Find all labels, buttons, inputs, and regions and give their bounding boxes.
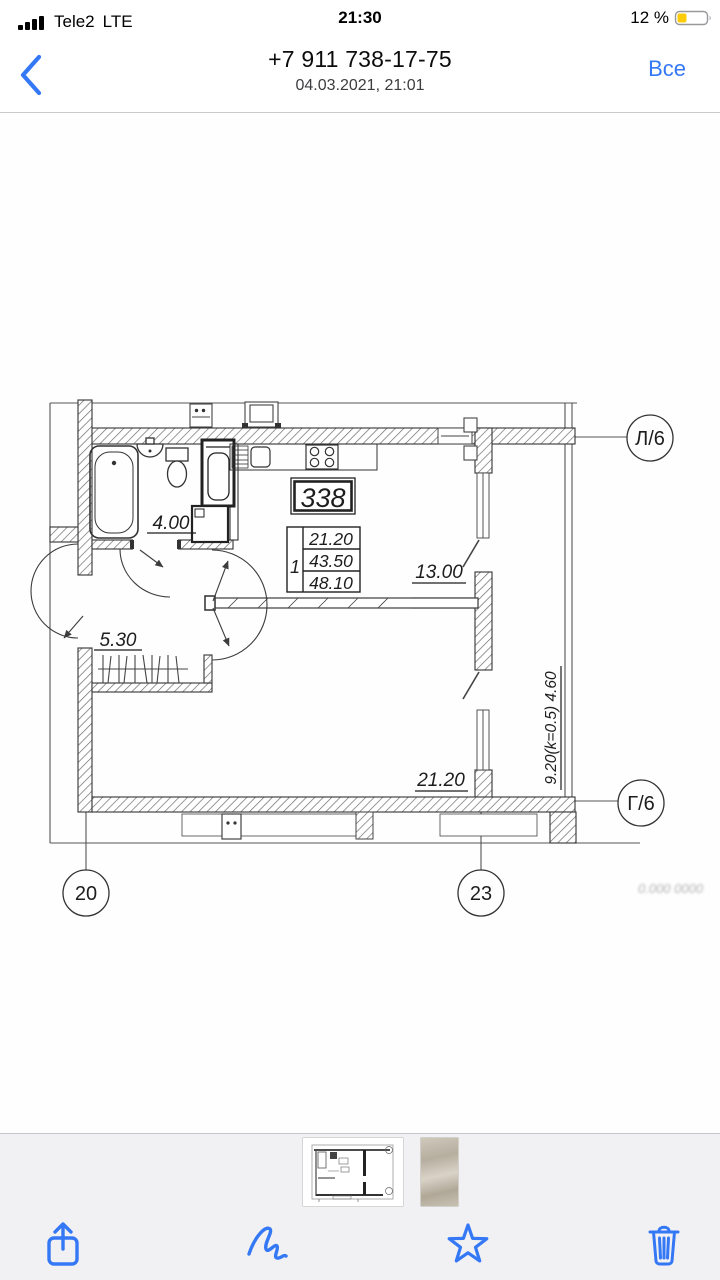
- wardrobe-icon: [98, 655, 188, 683]
- delete-button[interactable]: [636, 1216, 692, 1272]
- share-button[interactable]: [35, 1216, 91, 1272]
- markup-button[interactable]: [242, 1216, 298, 1272]
- axis-label-G6: Г/6: [627, 793, 655, 815]
- favorite-button[interactable]: [440, 1216, 496, 1272]
- battery-percent-label: 12 %: [630, 8, 669, 28]
- floor-plan-drawing: 338 1 21.20 43.50 48.10 4.00 5.30: [0, 113, 720, 1133]
- bathroom-door-opening: [130, 538, 181, 551]
- clock-label: 21:30: [0, 8, 720, 28]
- axis-markers: Л/6 Г/6 20 23: [63, 415, 673, 916]
- loggia-area-label: 9.20(k=0.5) 4.60: [543, 671, 560, 785]
- axis-label-L6: Л/6: [635, 428, 665, 450]
- chevron-left-icon: [14, 50, 54, 100]
- share-icon: [35, 1216, 91, 1272]
- nav-bar: +7 911 738-17-75 04.03.2021, 21:01 Все: [0, 44, 720, 113]
- living-area-label: 21.20: [416, 770, 465, 791]
- trash-icon: [636, 1216, 692, 1272]
- photo-timestamp: 04.03.2021, 21:01: [120, 77, 600, 95]
- markup-squiggle-icon: [242, 1216, 298, 1272]
- bathroom-area-label: 4.00: [153, 513, 190, 534]
- apartment-number: 338: [300, 483, 345, 513]
- battery-icon: [674, 8, 714, 28]
- faint-print-marks: 0.000 0000: [638, 881, 704, 896]
- back-button[interactable]: [14, 50, 54, 102]
- total-area-value: 48.10: [309, 573, 353, 593]
- photos-app-screen: Tele2 LTE 21:30 12 % +7 911 73: [0, 0, 720, 1280]
- adjacent-fixtures: [190, 402, 281, 430]
- axis-label-23: 23: [470, 883, 492, 905]
- photo-title: +7 911 738-17-75: [120, 46, 600, 73]
- apartment-number-box: 338: [291, 478, 355, 514]
- apartment-area-value: 43.50: [309, 551, 353, 571]
- kitchen-counter: [230, 444, 377, 470]
- hall-area-label: 5.30: [100, 630, 137, 651]
- filmstrip-thumbnail-current[interactable]: [303, 1138, 403, 1206]
- photo-viewer[interactable]: 338 1 21.20 43.50 48.10 4.00 5.30: [0, 113, 720, 1133]
- kitchen-area-label: 13.00: [415, 562, 463, 583]
- bathtub-icon: [90, 446, 138, 538]
- status-bar: Tele2 LTE 21:30 12 %: [0, 0, 720, 44]
- water-heater-icon: [202, 440, 234, 506]
- mini-floorplan: [303, 1138, 403, 1206]
- washing-machine-icon: [192, 506, 228, 542]
- star-icon: [440, 1216, 496, 1272]
- show-all-button[interactable]: Все: [648, 56, 686, 82]
- toilet-icon: [166, 448, 188, 487]
- living-area-value: 21.20: [308, 529, 353, 549]
- bottom-chrome: [0, 1133, 720, 1280]
- axis-label-20: 20: [75, 883, 97, 905]
- bottom-edge-details: [182, 812, 537, 839]
- stove-icon: [306, 445, 338, 469]
- filmstrip-thumbnail-next[interactable]: [421, 1138, 458, 1206]
- partition-wall: [205, 596, 478, 610]
- rooms-count: 1: [290, 557, 300, 577]
